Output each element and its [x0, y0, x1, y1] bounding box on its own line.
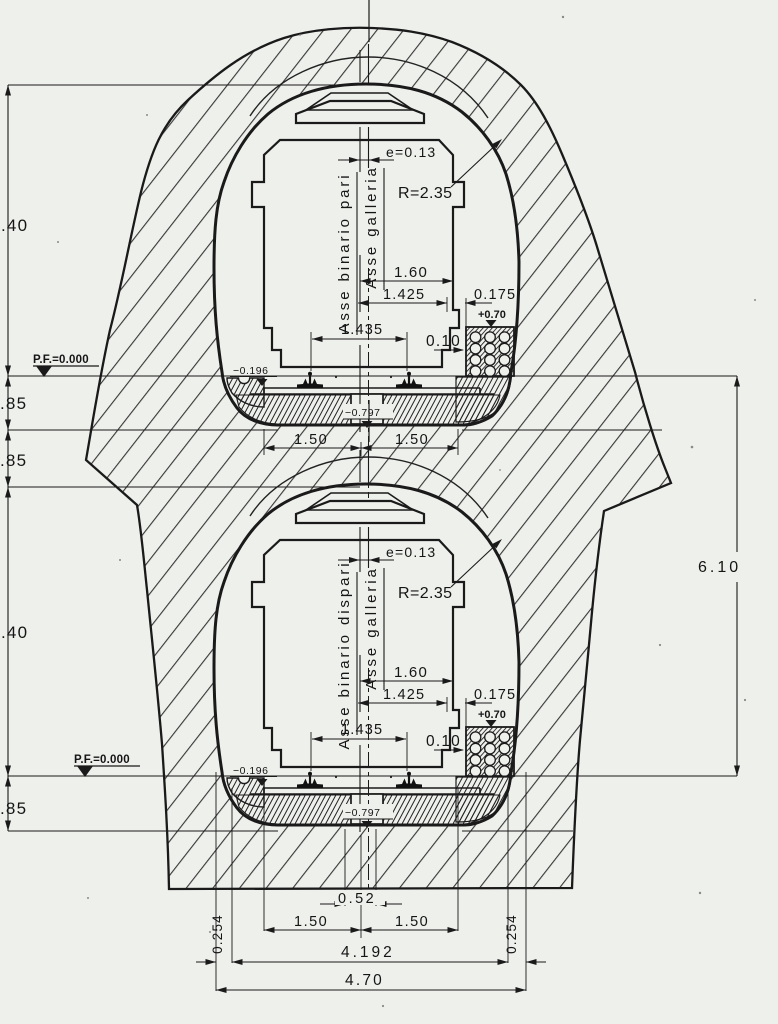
svg-text:.85: .85 [0, 799, 27, 818]
svg-text:0.254: 0.254 [504, 914, 519, 954]
svg-text:P.F.=0.000: P.F.=0.000 [74, 754, 130, 766]
svg-text:0.52: 0.52 [338, 891, 376, 907]
svg-text:Asse binario pari: Asse binario pari [336, 172, 353, 333]
svg-text:Asse galleria: Asse galleria [363, 566, 380, 690]
svg-text:4.70: 4.70 [345, 972, 384, 989]
svg-text:1.50: 1.50 [395, 432, 429, 448]
svg-text:1.50: 1.50 [294, 432, 328, 448]
svg-text:Asse galleria: Asse galleria [363, 165, 380, 289]
svg-text:.85: .85 [0, 451, 27, 470]
svg-text:P.F.=0.000: P.F.=0.000 [33, 354, 89, 366]
svg-text:6.10: 6.10 [698, 559, 741, 576]
svg-text:4.192: 4.192 [341, 944, 395, 961]
svg-text:0.254: 0.254 [210, 914, 225, 954]
svg-text:.85: .85 [0, 394, 27, 413]
svg-text:.40: .40 [1, 623, 28, 642]
svg-text:1.50: 1.50 [395, 914, 429, 930]
svg-text:1.50: 1.50 [294, 914, 328, 930]
svg-text:.40: .40 [1, 216, 28, 235]
svg-text:Asse binario dispari: Asse binario dispari [336, 561, 353, 750]
